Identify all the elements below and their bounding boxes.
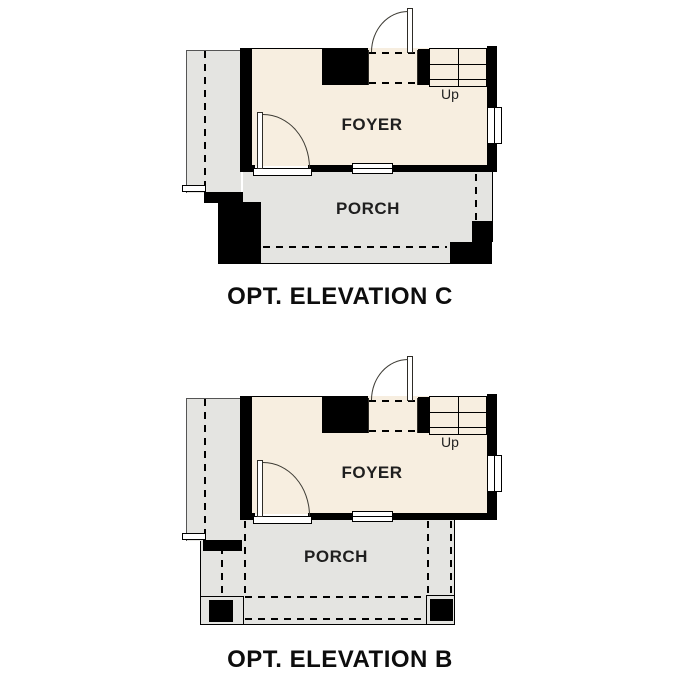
foyer-wall-top-block [322,49,368,85]
stairs [429,396,487,435]
front-window [352,163,393,174]
stairs-up-label: Up [441,86,459,102]
adjacent-structure [186,398,241,541]
adjacent-structure-dashed-line [204,51,206,191]
corner-wall-bar [203,540,242,551]
porch-roofline-dashed-right [475,174,477,221]
front-door-sill [253,168,312,176]
rear-door-opening-dash-bottom [369,82,417,84]
porch-dashed-v3 [427,521,429,595]
right-window [487,107,502,144]
plan-title-elevation-c: OPT. ELEVATION C [140,283,540,311]
rear-door-opening [368,398,418,433]
porch-column-right [430,599,453,621]
porch-wall-right-upper [472,221,492,242]
adjacent-structure-dashed-line [204,399,206,539]
plan-title-elevation-b: OPT. ELEVATION B [140,646,540,674]
foyer-wall-left [240,48,252,172]
side-window [182,185,206,192]
right-window [487,455,502,492]
porch-label: PORCH [328,199,408,219]
rear-door-opening-dash-bottom [369,430,417,432]
front-window [352,511,393,522]
front-wall-seg-2 [308,513,352,520]
front-wall-seg-2 [308,165,352,172]
rear-door-swing-arc [371,359,408,400]
foyer-wall-left [240,396,252,520]
foyer-wall-top-block [322,397,368,433]
porch-roofline-dashed [263,246,447,248]
porch-wall-left [218,202,261,264]
porch-dashed-v4 [450,521,452,595]
porch-dashed-h1 [245,596,427,598]
foyer-label: FOYER [332,115,412,135]
porch-wall-right-lower [450,242,492,264]
rear-door-swing-arc [371,11,408,52]
foyer-label: FOYER [332,463,412,483]
front-door-sill [253,516,312,524]
porch-column-left [209,600,233,622]
front-wall-seg-3 [393,513,497,520]
porch-dashed-v2 [244,521,246,597]
porch-dashed-h2 [245,618,427,620]
stairs [429,48,487,87]
corner-wall-bar [204,192,243,203]
adjacent-structure [186,50,241,193]
side-window [182,533,206,540]
rear-door-opening [368,50,418,85]
stairs-up-label: Up [441,434,459,450]
floorplan-sheet: Up FOYER PORCH OPT. ELEVATION C [0,0,687,687]
front-wall-seg-3 [393,165,497,172]
porch-label: PORCH [296,547,376,567]
